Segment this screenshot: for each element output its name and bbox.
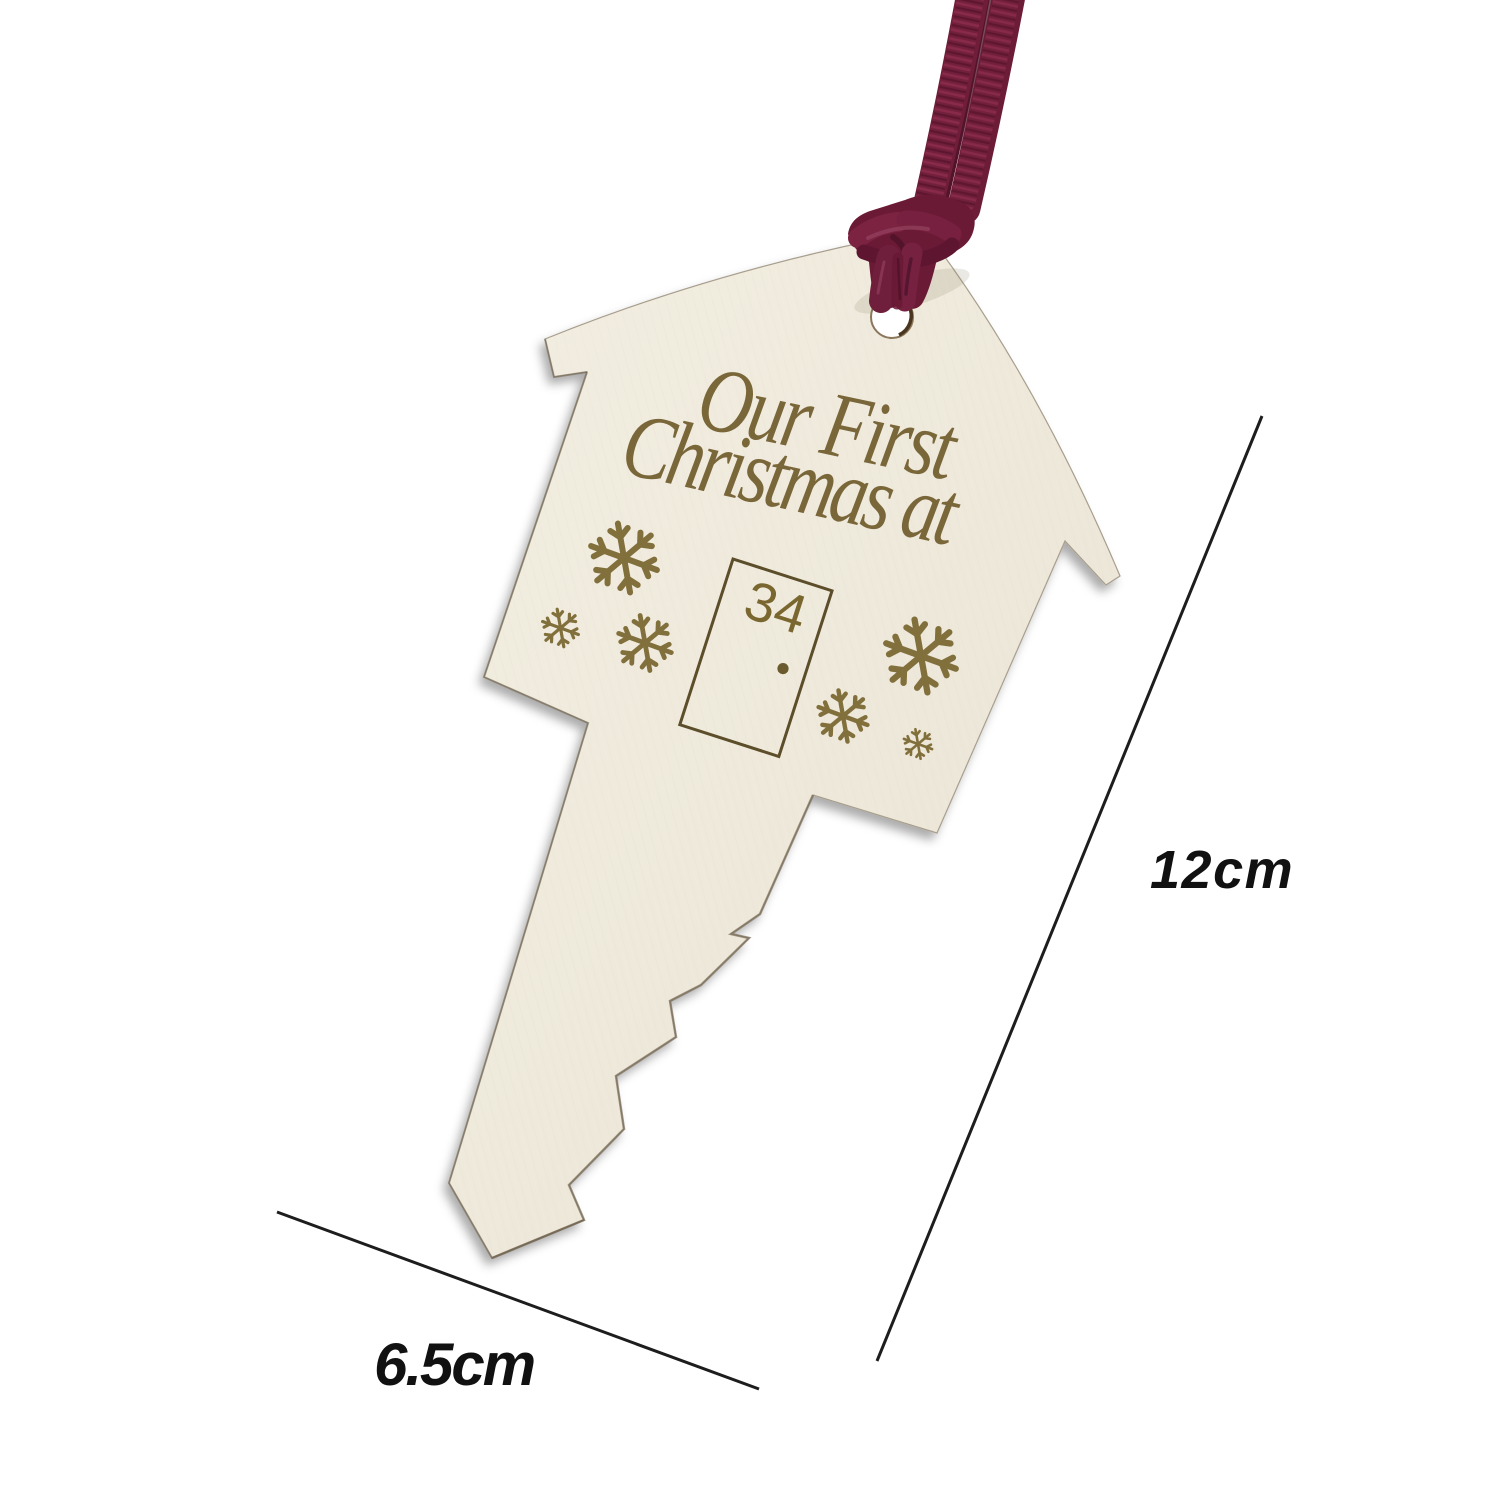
svg-text:12cm: 12cm [1150,840,1294,900]
svg-text:6.5cm: 6.5cm [374,1331,534,1398]
